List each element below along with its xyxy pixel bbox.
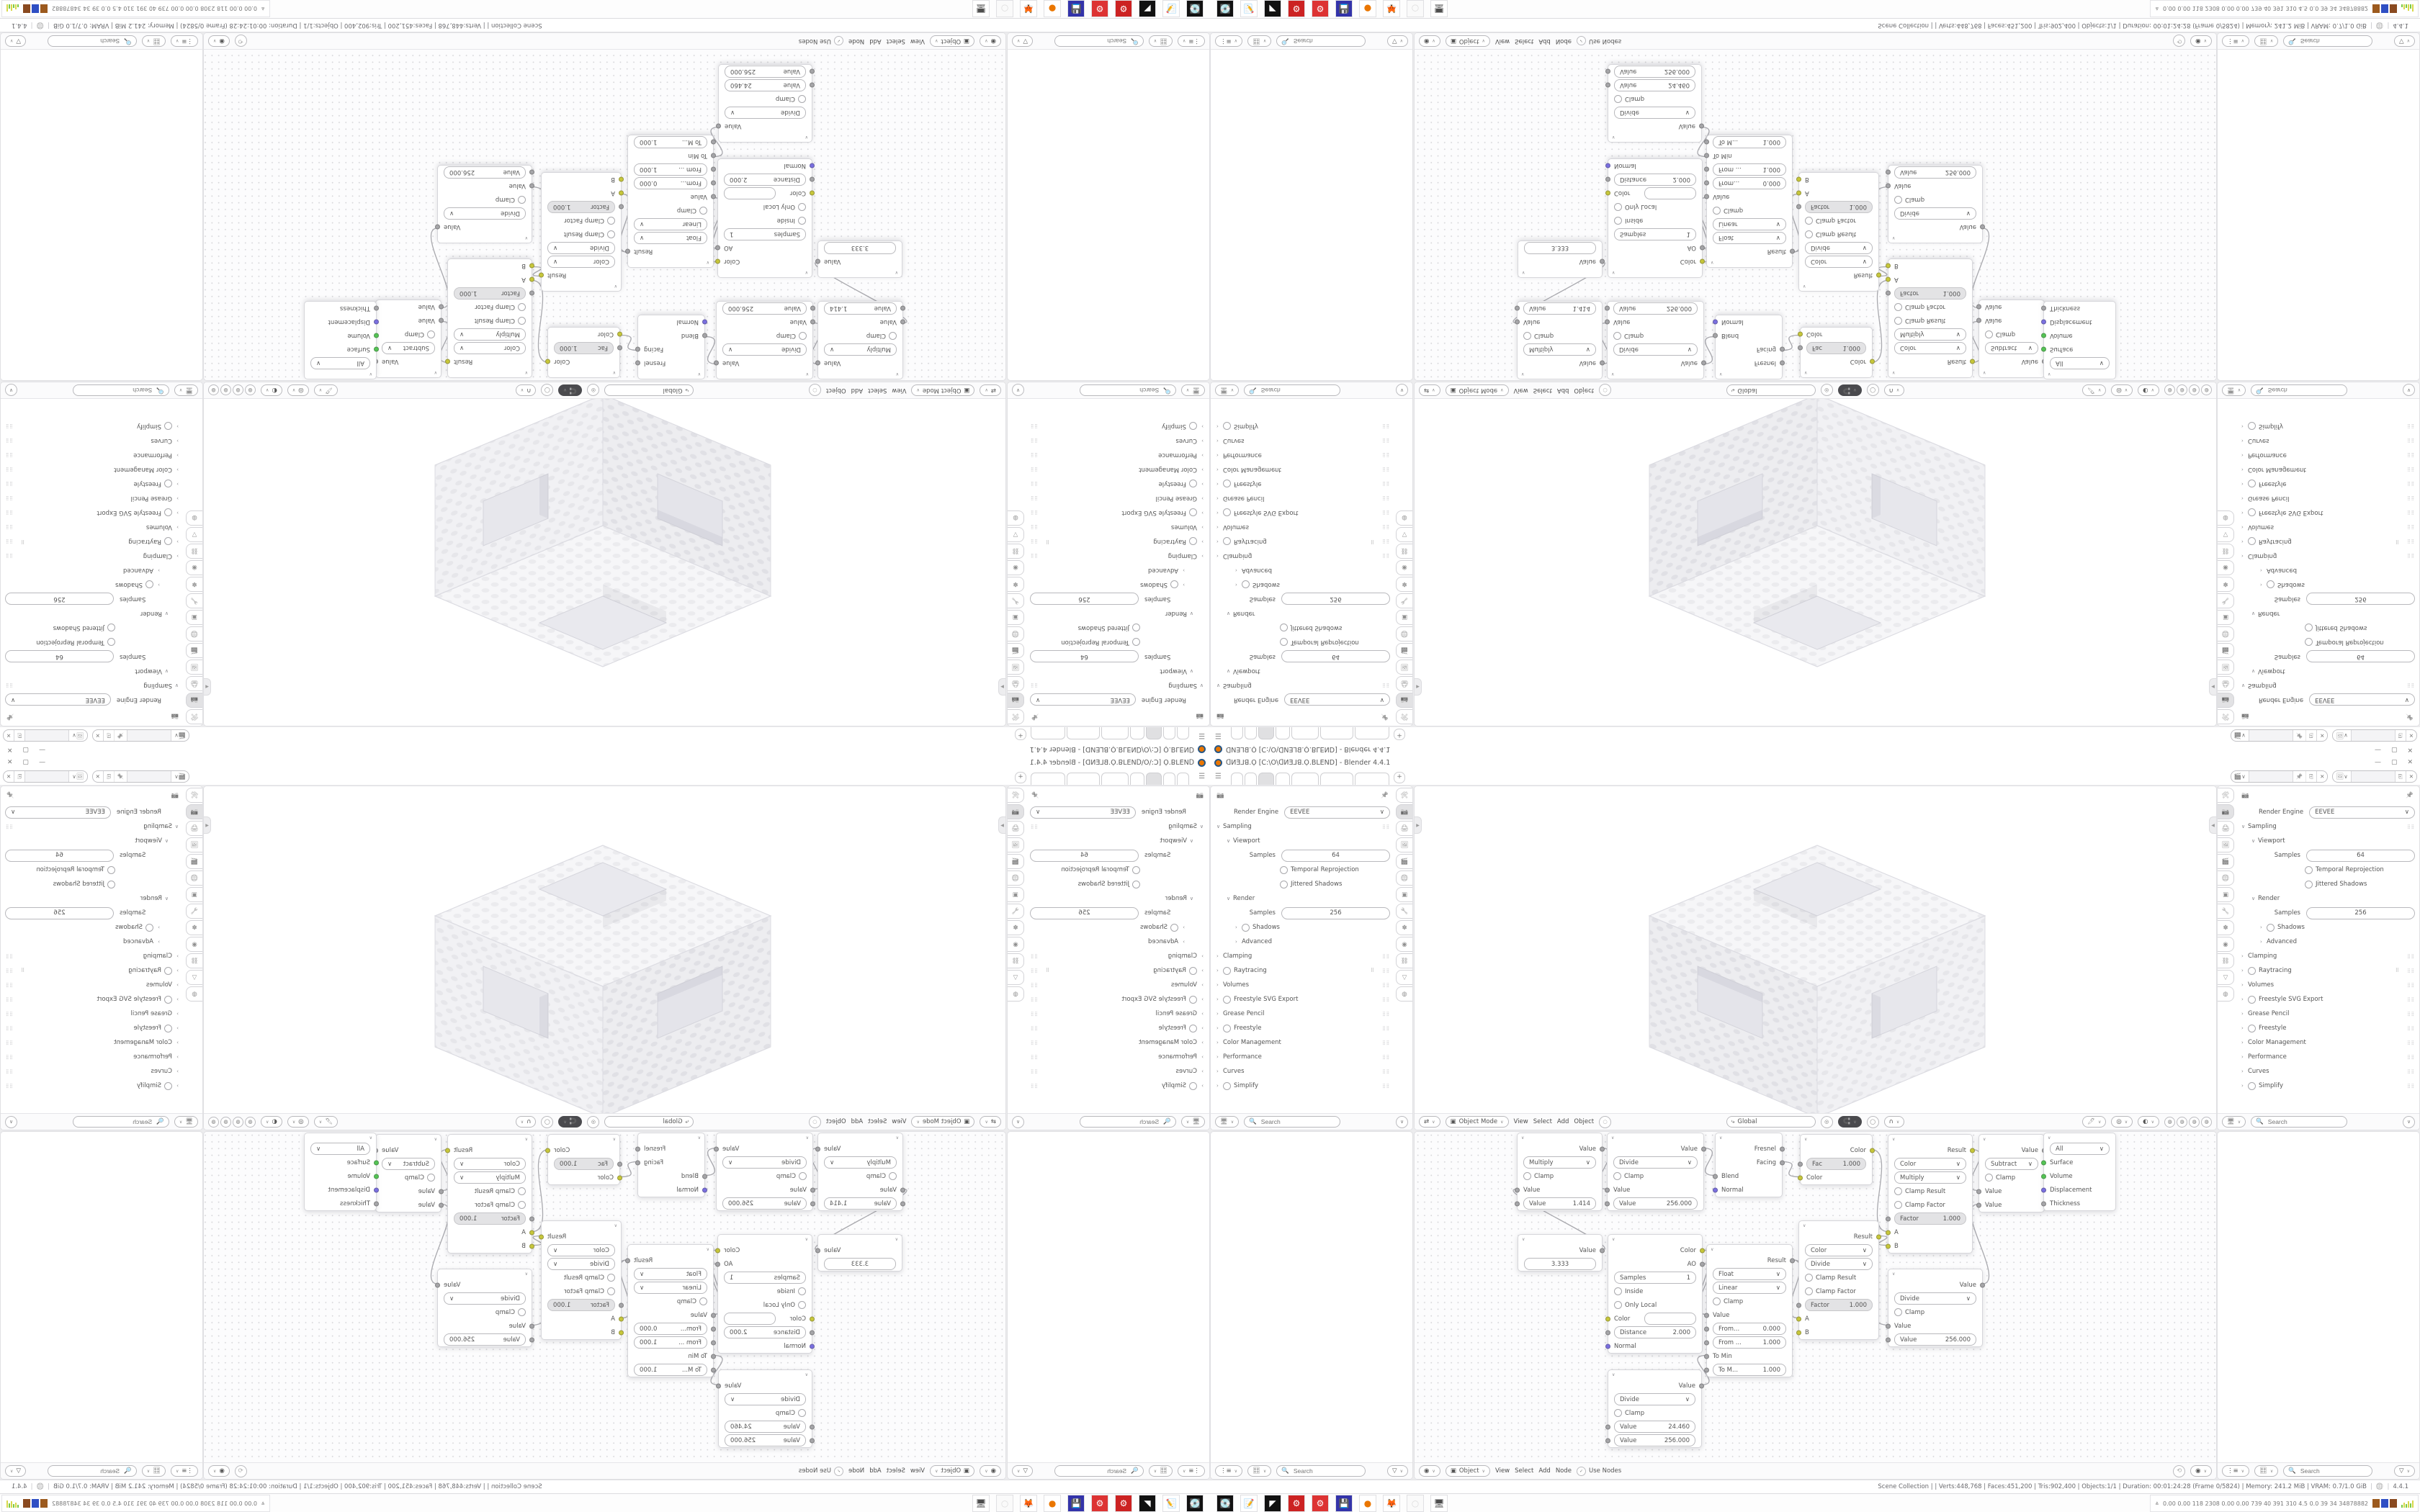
node-header[interactable]: ∨	[1608, 1370, 1701, 1379]
node-row[interactable]: Facing	[1716, 1156, 1782, 1169]
section-checkbox[interactable]	[1189, 509, 1197, 517]
view-layer-icon[interactable]: 🖼	[1008, 660, 1024, 675]
node-row[interactable]: Divide∨	[542, 241, 621, 255]
workspace-tab[interactable]	[1231, 727, 1243, 739]
section-chevron-icon[interactable]: ›	[1216, 1040, 1223, 1045]
node-dropdown[interactable]: Color∨	[1805, 256, 1873, 268]
node-row[interactable]: Value	[1707, 1308, 1792, 1322]
shader-node[interactable]: ∨ValueMultiply∨ClampValueValue1.414	[817, 301, 903, 379]
search-input[interactable]: 🔍	[48, 35, 137, 47]
checkbox[interactable]	[1132, 866, 1140, 874]
value-slider[interactable]: 64	[2306, 651, 2415, 663]
funnel-filter-dropdown[interactable]: ▽∨	[5, 35, 26, 47]
socket-out[interactable]	[1980, 225, 1985, 230]
node-row[interactable]: Factor1.000	[542, 1298, 621, 1312]
pin-icon[interactable]: 📌	[2406, 792, 2414, 799]
xray-dropdown[interactable]: ◐∨	[2138, 384, 2159, 396]
node-value-field[interactable]: Samples1	[1614, 228, 1696, 240]
node-value-field[interactable]: Value24.460	[1614, 79, 1695, 91]
node-row[interactable]: Value	[1979, 355, 2044, 369]
properties-row[interactable]: ∨Sampling⣿⣿	[1211, 678, 1394, 693]
node-row[interactable]: Distance2.000	[1608, 173, 1702, 186]
socket-out[interactable]	[1790, 249, 1795, 254]
section-chevron-icon[interactable]: ›	[1235, 939, 1242, 945]
shader-node[interactable]: ∨ResultFloat∨Linear∨ClampValueFrom...0.0…	[627, 1244, 714, 1377]
socket-out[interactable]	[815, 1248, 820, 1253]
node-row[interactable]: Inside	[718, 1284, 812, 1298]
red-badge-gear-icon[interactable]: ⚙	[1115, 1495, 1132, 1512]
properties-row[interactable]: ›Color Management⣿⣿	[1026, 462, 1209, 477]
display-icon[interactable]: 🖥	[1430, 0, 1448, 17]
properties-row[interactable]: ›Curves⣿⣿	[1, 433, 184, 448]
node-row[interactable]: Color	[1608, 1243, 1702, 1257]
shader-node[interactable]: ∨ColorFac1.000Color	[1800, 1134, 1873, 1185]
section-chevron-icon[interactable]: ∨	[1187, 611, 1193, 616]
checkbox[interactable]	[1132, 881, 1140, 888]
socket-in[interactable]	[1605, 320, 1610, 325]
node-checkbox[interactable]	[798, 1301, 806, 1309]
property-dropdown[interactable]: EEVEE∨	[1030, 806, 1136, 819]
properties-row[interactable]: ›Advanced	[1, 935, 184, 949]
socket-in[interactable]	[439, 318, 444, 323]
display-mode-dropdown[interactable]: ⋮≡∨	[2222, 35, 2249, 47]
properties-row[interactable]: Samples256	[1026, 592, 1209, 606]
properties-row[interactable]: ›Color Management⣿⣿	[1211, 462, 1394, 477]
display-mode-dropdown[interactable]: ⋮≡∨	[171, 1465, 198, 1477]
node-row[interactable]: Value	[717, 356, 812, 370]
socket-out[interactable]	[1701, 1146, 1706, 1151]
node-row[interactable]: Multiply∨	[448, 328, 532, 341]
node-row[interactable]: Color	[718, 186, 812, 200]
section-chevron-icon[interactable]: ›	[1197, 1083, 1204, 1089]
modifiers-icon[interactable]: 🔧	[186, 593, 202, 608]
socket-out[interactable]	[1600, 1248, 1605, 1253]
node-checkbox[interactable]	[607, 1287, 615, 1295]
section-chevron-icon[interactable]: ›	[2241, 481, 2248, 487]
node-row[interactable]: Color	[1608, 1312, 1702, 1326]
scene-selector[interactable]: 🎬∨ 📌 ⎘ ✕	[2231, 770, 2329, 783]
socket-out[interactable]	[1780, 1160, 1785, 1165]
node-row[interactable]: Color	[1801, 328, 1872, 341]
properties-row[interactable]: ›Freestyle SVG Export⣿⣿	[1, 992, 184, 1007]
socket-in[interactable]	[374, 333, 379, 338]
properties-row[interactable]: Render EngineEEVEE∨	[1, 693, 184, 707]
checkbox[interactable]	[2305, 624, 2313, 632]
node-checkbox[interactable]	[1985, 1174, 1993, 1182]
shader-node[interactable]: ∨ValueDivide∨ClampValue24.460Value256.00…	[718, 1369, 812, 1448]
data-icon[interactable]: ▽	[2218, 527, 2234, 542]
properties-row[interactable]: ›Freestyle⣿⣿	[1026, 477, 1209, 491]
node-row[interactable]: B	[1888, 1239, 1972, 1253]
empty-slot-icon[interactable]: ○	[1407, 1495, 1424, 1512]
node-header[interactable]: ∨	[1707, 258, 1792, 267]
properties-row[interactable]: ∨Render	[1211, 891, 1394, 906]
node-value-field[interactable]: Value24.460	[725, 1421, 806, 1433]
delete-scene-button[interactable]: ✕	[93, 730, 103, 741]
socket-in[interactable]	[1976, 305, 1981, 310]
socket-in[interactable]	[900, 320, 905, 325]
socket-in[interactable]	[529, 277, 534, 282]
node-checkbox[interactable]	[798, 95, 806, 103]
socket-in[interactable]	[1796, 177, 1801, 182]
node-row[interactable]: Value	[818, 255, 902, 269]
section-chevron-icon[interactable]: ›	[1197, 1025, 1204, 1031]
node-row[interactable]: Color	[548, 1143, 619, 1157]
blender-icon[interactable]: ●	[1044, 0, 1061, 17]
node-header[interactable]: ∨	[818, 1133, 902, 1142]
node-value-field[interactable]: Factor1.000	[454, 287, 526, 300]
node-row[interactable]: To Min	[628, 149, 713, 163]
node-row[interactable]: 3.333	[1518, 241, 1602, 255]
node-row[interactable]: Result	[1707, 1254, 1792, 1267]
node-checkbox[interactable]	[1894, 196, 1902, 204]
firefox-icon[interactable]: 🦊	[1383, 1495, 1400, 1512]
socket-in[interactable]	[900, 1187, 905, 1192]
node-row[interactable]: Distance2.000	[1608, 1326, 1702, 1339]
funnel-filter-dropdown[interactable]: ▽∨	[5, 1465, 26, 1477]
node-header[interactable]: ∨	[717, 1133, 812, 1142]
node-value-field[interactable]: Samples1	[724, 1272, 806, 1284]
viewlayer-name-field[interactable]	[2352, 771, 2396, 782]
socket-in[interactable]	[711, 1326, 716, 1331]
socket-in[interactable]	[711, 194, 716, 199]
section-chevron-icon[interactable]: ›	[1197, 1068, 1204, 1074]
pin-icon[interactable]: 📌	[6, 792, 14, 799]
node-dropdown[interactable]: Divide∨	[1894, 1292, 1976, 1305]
shader-node[interactable]: ∨ColorAOSamples1InsideOnly LocalColorDis…	[717, 158, 812, 278]
node-row[interactable]: Inside	[718, 214, 812, 228]
socket-in[interactable]	[529, 291, 534, 296]
properties-row[interactable]: ›Simplify⣿⣿	[1211, 419, 1394, 433]
properties-row[interactable]: ›Clamping⣿⣿	[1211, 549, 1394, 563]
node-value-field[interactable]: 3.333	[1524, 242, 1596, 254]
minimize-button[interactable]: —	[39, 746, 45, 753]
pin-icon[interactable]: 📌	[1381, 792, 1389, 799]
node-row[interactable]: Color	[548, 328, 619, 341]
node-value-field[interactable]: Distance2.000	[724, 1326, 806, 1338]
socket-in[interactable]	[810, 69, 815, 74]
node-row[interactable]: Value	[1518, 1243, 1602, 1257]
node-value-field[interactable]: Value24.460	[725, 79, 806, 91]
property-dropdown[interactable]: EEVEE∨	[1030, 694, 1136, 706]
workspace-tab[interactable]	[1291, 773, 1319, 785]
socket-in[interactable]	[1605, 191, 1610, 196]
node-row[interactable]: Subtract∨	[376, 341, 441, 355]
properties-row[interactable]: Samples256	[1026, 906, 1209, 920]
socket-in[interactable]	[1605, 177, 1610, 182]
search-input[interactable]: 🔍	[1054, 35, 1144, 47]
properties-row[interactable]: ›Volumes⣿⣿	[2236, 978, 2419, 992]
funnel-filter-dropdown[interactable]: ▽∨	[2394, 35, 2415, 47]
node-row[interactable]: Blend	[638, 329, 704, 343]
properties-row[interactable]: ›Simplify⣿⣿	[1211, 1079, 1394, 1093]
node-row[interactable]: Value	[818, 1183, 902, 1197]
property-dropdown[interactable]: EEVEE∨	[5, 806, 111, 819]
properties-row[interactable]: Temporal Reprojection	[1, 863, 184, 877]
node-row[interactable]: Value256.000	[1888, 166, 1982, 179]
properties-row[interactable]: ›Shadows	[1, 920, 184, 935]
properties-row[interactable]: ›Performance⣿⣿	[2236, 448, 2419, 462]
node-row[interactable]: Value	[438, 179, 532, 193]
menu-icon[interactable]: ☰	[1215, 773, 1227, 782]
properties-row[interactable]: ›Color Management⣿⣿	[1211, 1035, 1394, 1050]
node-row[interactable]: Multiply∨	[1888, 328, 1972, 341]
shader-node[interactable]: ∨ResultColor∨Divide∨Clamp ResultClamp Fa…	[1798, 1220, 1879, 1340]
node-row[interactable]: Color	[548, 355, 619, 369]
node-row[interactable]: Value	[1608, 1183, 1703, 1197]
node-row[interactable]: Fac1.000	[1801, 1157, 1872, 1171]
editor-type-button[interactable]: 🖥∨	[2222, 1116, 2246, 1128]
proportional-edit-icon[interactable]: ◯	[541, 384, 553, 397]
socket-in[interactable]	[439, 305, 444, 310]
node-value-field[interactable]: To M...1.000	[1713, 1364, 1786, 1376]
socket-out[interactable]	[545, 359, 550, 364]
properties-row[interactable]: Render EngineEEVEE∨	[1211, 805, 1394, 819]
socket-out[interactable]	[635, 361, 640, 366]
node-row[interactable]: Color	[718, 1243, 812, 1257]
scene-selector[interactable]: 🎬∨ 📌 ⎘ ✕	[92, 729, 190, 742]
properties-row[interactable]: ›Freestyle SVG Export⣿⣿	[2236, 505, 2419, 520]
properties-row[interactable]: ›Raytracing⠿⣿⣿	[2236, 534, 2419, 549]
menu-view[interactable]: View	[892, 1118, 906, 1125]
socket-in[interactable]	[529, 1337, 534, 1342]
socket-in[interactable]	[810, 320, 815, 325]
menu-select[interactable]: Select	[1533, 1118, 1552, 1125]
shader-node[interactable]: ∨Value3.333	[817, 1234, 902, 1272]
constraints-icon[interactable]: ⛓	[1008, 544, 1024, 559]
toolbar-toggle-icon[interactable]: ▶	[998, 816, 1005, 834]
section-checkbox[interactable]	[1223, 480, 1231, 488]
properties-row[interactable]: ›Grease Pencil⣿⣿	[1, 491, 184, 505]
node-color-field[interactable]	[1644, 1313, 1696, 1325]
menu-add[interactable]: Add	[1557, 1118, 1569, 1125]
section-chevron-icon[interactable]: ›	[1178, 924, 1185, 930]
menu-node[interactable]: Node	[848, 1467, 864, 1475]
filter-settings-dropdown[interactable]: 🎛∨	[2254, 35, 2278, 47]
properties-row[interactable]: ›Curves⣿⣿	[1211, 1064, 1394, 1079]
menu-view[interactable]: View	[910, 37, 925, 45]
menu-view[interactable]: View	[892, 387, 906, 394]
node-row[interactable]: Value	[1888, 1319, 1982, 1333]
snap-target-icon[interactable]: ◎	[587, 384, 599, 397]
socket-in[interactable]	[529, 184, 534, 189]
node-value-field[interactable]: Value256.000	[725, 1434, 806, 1446]
section-chevron-icon[interactable]: ∨	[2251, 896, 2258, 901]
node-row[interactable]: A	[448, 1225, 532, 1239]
node-dropdown[interactable]: Subtract∨	[1985, 342, 2038, 354]
search-input[interactable]: 🔍	[1276, 35, 1366, 47]
node-row[interactable]: Clamp Result	[1888, 314, 1972, 328]
socket-in[interactable]	[810, 306, 815, 311]
node-dropdown[interactable]: Color∨	[547, 256, 615, 268]
section-checkbox[interactable]	[164, 509, 172, 517]
shader-node[interactable]: ∨All∨SurfaceVolumeDisplacementThickness	[304, 1133, 377, 1211]
display-mode-dropdown[interactable]: ⋮≡∨	[171, 35, 198, 47]
section-chevron-icon[interactable]: ›	[2241, 996, 2248, 1002]
node-row[interactable]: Value256.000	[719, 1434, 812, 1447]
section-chevron-icon[interactable]: ›	[1197, 524, 1204, 530]
section-chevron-icon[interactable]: ›	[1178, 567, 1185, 573]
shading-mode-icon[interactable]: ◍	[2164, 385, 2175, 396]
checkbox[interactable]	[107, 639, 115, 647]
section-chevron-icon[interactable]: ›	[172, 510, 179, 516]
node-row[interactable]: To M...1.000	[1707, 135, 1792, 149]
section-chevron-icon[interactable]: ›	[1197, 996, 1204, 1002]
constraints-icon[interactable]: ⛓	[2218, 953, 2234, 968]
node-value-field[interactable]: Samples1	[1614, 1272, 1696, 1284]
node-row[interactable]: Value	[438, 1278, 532, 1292]
section-checkbox[interactable]	[1223, 538, 1231, 546]
node-dropdown[interactable]: Multiply∨	[1523, 343, 1596, 356]
properties-row[interactable]: Samples64	[1, 848, 184, 863]
node-row[interactable]: Clamp	[818, 329, 902, 343]
properties-row[interactable]: ›Raytracing⠿⣿⣿	[1, 963, 184, 978]
node-row[interactable]: B	[1799, 173, 1878, 186]
value-slider[interactable]: 64	[5, 850, 114, 862]
socket-out[interactable]	[445, 1148, 450, 1153]
world-icon[interactable]: 🌐	[1396, 626, 1412, 642]
section-checkbox[interactable]	[145, 924, 153, 932]
menu-add[interactable]: Add	[851, 1118, 863, 1125]
display-mode-dropdown[interactable]: ⋮≡∨	[1178, 35, 1205, 47]
socket-in[interactable]	[1798, 332, 1803, 337]
property-dropdown[interactable]: EEVEE∨	[2309, 806, 2415, 819]
socket-out[interactable]	[545, 1148, 550, 1153]
node-row[interactable]: Value24.460	[1608, 78, 1701, 92]
socket-in[interactable]	[617, 1175, 622, 1180]
section-chevron-icon[interactable]: ›	[1235, 924, 1242, 930]
properties-row[interactable]: ∨Render	[1, 606, 184, 621]
socket-in[interactable]	[810, 163, 815, 168]
node-row[interactable]: Divide∨	[1799, 241, 1878, 255]
menu-node[interactable]: Node	[1556, 1467, 1572, 1475]
funnel-filter-dropdown[interactable]: ▽∨	[1387, 1465, 1408, 1477]
properties-row[interactable]: ›Raytracing⠿⣿⣿	[2236, 963, 2419, 978]
node-header[interactable]: ∨	[542, 282, 621, 291]
node-row[interactable]: Divide∨	[717, 1156, 812, 1169]
properties-row[interactable]: ›Raytracing⠿⣿⣿	[1, 534, 184, 549]
snap-toggle[interactable]: 🧲∨	[558, 1116, 582, 1128]
socket-out[interactable]	[1700, 259, 1705, 264]
node-row[interactable]: Value	[818, 1243, 902, 1257]
socket-in[interactable]	[1605, 1187, 1610, 1192]
node-row[interactable]: Clamp Result	[542, 1271, 621, 1284]
workspace-tab[interactable]	[1245, 727, 1257, 739]
dark-app-icon[interactable]: ◤	[1264, 1495, 1281, 1512]
physics-icon[interactable]: ◉	[1008, 560, 1024, 575]
node-row[interactable]: Normal	[718, 1339, 812, 1353]
properties-row[interactable]: Render EngineEEVEE∨	[1211, 693, 1394, 707]
section-chevron-icon[interactable]: ›	[2260, 567, 2267, 573]
node-checkbox[interactable]	[1614, 203, 1622, 211]
section-chevron-icon[interactable]: ›	[2241, 452, 2248, 458]
viewport-3d[interactable]: ▶ ◀ ⇄∨ ▣Object Mode∨ View Select Add Obj…	[203, 382, 1006, 726]
section-chevron-icon[interactable]: ›	[153, 567, 160, 573]
menu-add[interactable]: Add	[869, 1467, 881, 1475]
data-icon[interactable]: ▽	[2218, 970, 2234, 985]
node-checkbox[interactable]	[1614, 1301, 1622, 1309]
node-header[interactable]: ∨	[376, 369, 441, 377]
node-row[interactable]: Normal	[718, 159, 812, 173]
node-checkbox[interactable]	[1713, 207, 1721, 215]
node-row[interactable]: From...0.000	[628, 176, 713, 190]
shader-slot-dropdown[interactable]: ▣Object∨	[930, 1465, 974, 1477]
physics-icon[interactable]: ◉	[1396, 560, 1412, 575]
node-dropdown[interactable]: Divide∨	[722, 1156, 807, 1169]
section-chevron-icon[interactable]: ›	[172, 423, 179, 429]
sidebar-toggle-icon[interactable]: ◀	[2209, 678, 2216, 696]
close-button[interactable]: ✕	[7, 759, 13, 766]
snap-target-icon[interactable]: ◎	[1821, 1116, 1833, 1128]
properties-row[interactable]: ›Freestyle⣿⣿	[1211, 1021, 1394, 1035]
socket-in[interactable]	[702, 320, 707, 325]
section-chevron-icon[interactable]: ›	[172, 1083, 179, 1089]
snap-mode-dropdown[interactable]: ◉∨	[208, 35, 230, 47]
section-chevron-icon[interactable]: ›	[2241, 553, 2248, 559]
node-header[interactable]: ∨	[638, 370, 704, 379]
node-checkbox[interactable]	[1523, 1172, 1531, 1180]
node-header[interactable]: ∨	[376, 1135, 441, 1143]
constraints-icon[interactable]: ⛓	[2218, 544, 2234, 559]
filter-dropdown[interactable]: ∨	[1396, 384, 1408, 397]
node-row[interactable]: Value	[1518, 1183, 1602, 1197]
constraints-icon[interactable]: ⛓	[186, 544, 202, 559]
node-dropdown[interactable]: Linear∨	[634, 218, 707, 230]
section-checkbox[interactable]	[1223, 967, 1231, 975]
particles-icon[interactable]: ✽	[2218, 577, 2234, 592]
node-dropdown[interactable]: Divide∨	[1613, 1156, 1698, 1169]
section-chevron-icon[interactable]: ›	[172, 553, 179, 559]
object-icon[interactable]: ▣	[186, 610, 202, 625]
socket-out[interactable]	[539, 273, 544, 278]
node-dropdown[interactable]: Divide∨	[1805, 242, 1873, 254]
socket-in[interactable]	[1515, 1187, 1520, 1192]
node-dropdown[interactable]: Divide∨	[1614, 1393, 1695, 1405]
output-icon[interactable]: 🖨	[186, 821, 202, 836]
value-slider[interactable]: 256	[1281, 593, 1390, 606]
object-icon[interactable]: ▣	[1396, 610, 1412, 625]
tool-icon[interactable]: 🛠	[1008, 788, 1024, 803]
section-chevron-icon[interactable]: ›	[1197, 553, 1204, 559]
node-row[interactable]: Displacement	[305, 315, 376, 329]
properties-row[interactable]: ›Shadows	[1026, 920, 1209, 935]
scene-icon[interactable]: 🎬	[1396, 643, 1412, 658]
data-icon[interactable]: ▽	[1008, 527, 1024, 542]
overlays-dropdown[interactable]: ◎∨	[287, 1116, 309, 1128]
socket-out[interactable]	[1700, 1261, 1705, 1266]
properties-row[interactable]: Jittered Shadows	[1, 621, 184, 635]
section-chevron-icon[interactable]: ›	[1197, 953, 1204, 959]
shading-mode-icon[interactable]: ◍	[233, 385, 243, 396]
blender-icon[interactable]: ●	[1359, 1495, 1376, 1512]
toolbar-toggle-icon[interactable]: ▶	[1415, 816, 1422, 834]
shading-mode-icon[interactable]: ◍	[245, 385, 256, 396]
section-chevron-icon[interactable]: ›	[2241, 953, 2248, 959]
node-row[interactable]: AO	[718, 241, 812, 255]
delete-viewlayer-button[interactable]: ✕	[2406, 771, 2416, 782]
node-row[interactable]: AO	[718, 1257, 812, 1271]
dark-app-icon[interactable]: ◤	[1264, 0, 1281, 17]
shading-mode-icon[interactable]: ◍	[2164, 1117, 2175, 1128]
socket-in[interactable]	[529, 264, 534, 269]
node-row[interactable]: Clamp	[719, 1406, 812, 1420]
node-checkbox[interactable]	[518, 303, 526, 311]
material-icon[interactable]: ◍	[2218, 986, 2234, 1002]
orientation-dropdown[interactable]: ⤷Global	[604, 384, 694, 396]
node-row[interactable]: Value	[1608, 356, 1703, 370]
render-icon[interactable]: 📷	[186, 804, 202, 819]
node-color-field[interactable]	[724, 187, 776, 199]
